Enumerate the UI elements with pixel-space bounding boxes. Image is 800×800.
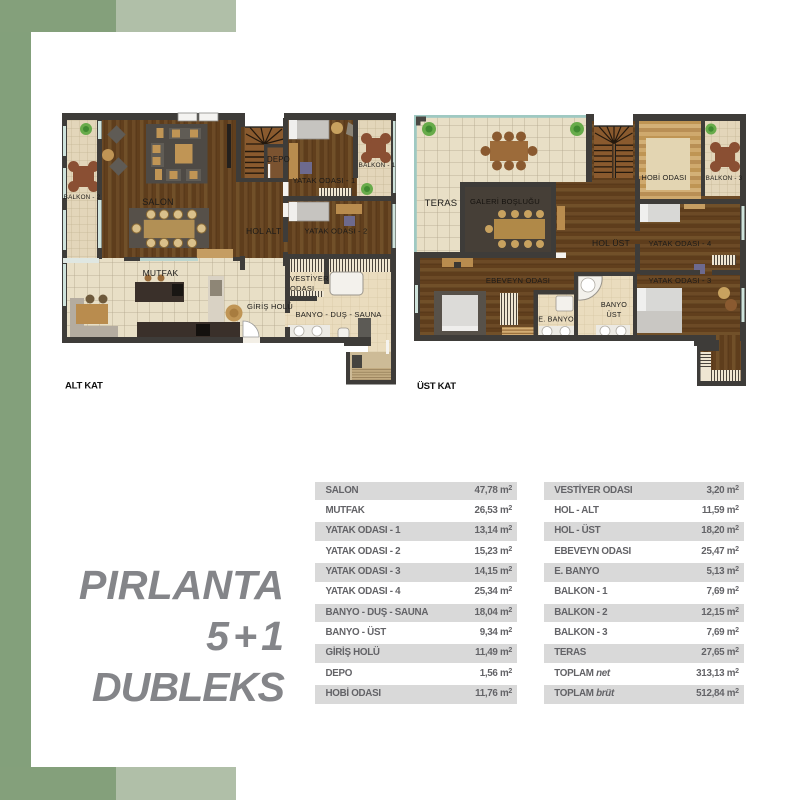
svg-text:TERAS: TERAS: [425, 198, 458, 209]
svg-text:HOL ÜST: HOL ÜST: [592, 238, 630, 248]
svg-text:ODASI: ODASI: [290, 284, 314, 293]
svg-text:BANYO - DUŞ - SAUNA: BANYO - DUŞ - SAUNA: [295, 310, 382, 319]
svg-text:YATAK ODASI - 2: YATAK ODASI - 2: [305, 227, 368, 236]
svg-text:BALKON - 3: BALKON - 3: [706, 175, 743, 182]
svg-text:ÜST KAT: ÜST KAT: [417, 381, 456, 392]
svg-text:E. BANYO: E. BANYO: [538, 315, 574, 324]
svg-text:SALON: SALON: [142, 197, 174, 207]
svg-text:GİRİŞ HOLÜ: GİRİŞ HOLÜ: [247, 302, 293, 311]
svg-text:BALKON - 1: BALKON - 1: [359, 162, 396, 169]
svg-text:VESTİYER: VESTİYER: [290, 274, 329, 283]
svg-text:GALERİ BOŞLUĞU: GALERİ BOŞLUĞU: [470, 197, 540, 206]
svg-text:DEPO: DEPO: [267, 155, 290, 164]
svg-text:YATAK ODASI - 1: YATAK ODASI - 1: [293, 176, 356, 185]
svg-text:ALT KAT: ALT KAT: [65, 381, 103, 392]
svg-text:EBEVEYN ODASI: EBEVEYN ODASI: [486, 276, 550, 285]
svg-text:YATAK ODASI - 4: YATAK ODASI - 4: [649, 239, 712, 248]
svg-text:HOBİ ODASI: HOBİ ODASI: [641, 173, 686, 182]
svg-text:BANYO: BANYO: [601, 300, 627, 309]
svg-text:ÜST: ÜST: [607, 310, 622, 319]
svg-text:HOL ALT: HOL ALT: [246, 226, 281, 236]
svg-text:YATAK ODASI - 3: YATAK ODASI - 3: [649, 276, 712, 285]
svg-text:BALKON - 2: BALKON - 2: [64, 194, 101, 201]
svg-text:MUTFAK: MUTFAK: [143, 268, 179, 278]
